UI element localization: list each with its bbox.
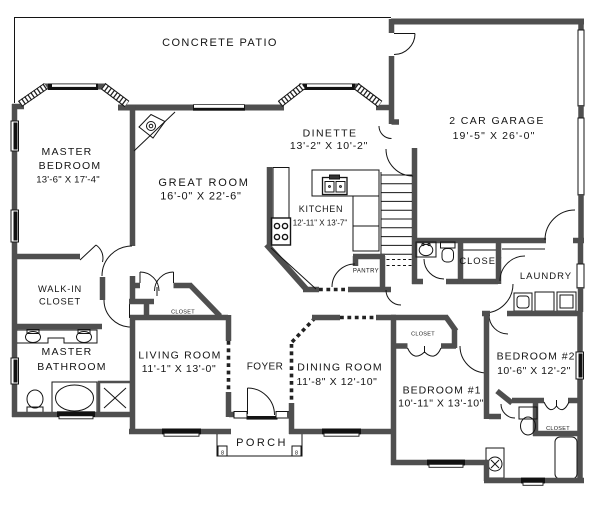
svg-text:PANTRY: PANTRY: [353, 269, 379, 275]
svg-text:12'-11" X 13'-7": 12'-11" X 13'-7": [293, 219, 348, 228]
svg-text:BEDROOM: BEDROOM: [39, 160, 102, 172]
svg-text:LIVING ROOM: LIVING ROOM: [138, 350, 221, 362]
svg-text:BATHROOM: BATHROOM: [37, 361, 107, 373]
svg-text:BEDROOM #1: BEDROOM #1: [403, 385, 482, 397]
svg-text:CLOSET: CLOSET: [171, 310, 195, 316]
svg-text:GREAT ROOM: GREAT ROOM: [158, 177, 249, 189]
svg-text:11'-1" X 13'-0": 11'-1" X 13'-0": [142, 363, 217, 375]
svg-text:13'-6" X 17'-4": 13'-6" X 17'-4": [36, 175, 100, 186]
svg-text:WALK-IN: WALK-IN: [38, 284, 82, 294]
svg-text:CLOSET: CLOSET: [39, 297, 81, 307]
svg-text:PORCH: PORCH: [236, 437, 288, 449]
svg-text:LAUNDRY: LAUNDRY: [520, 271, 572, 282]
svg-text:BEDROOM #2: BEDROOM #2: [497, 351, 576, 363]
svg-text:DINING ROOM: DINING ROOM: [297, 362, 383, 374]
svg-text:CLOSET: CLOSET: [546, 426, 570, 432]
svg-text:FOYER: FOYER: [247, 362, 283, 373]
svg-text:8: 8: [221, 451, 224, 457]
svg-text:10'-6" X 12'-2": 10'-6" X 12'-2": [497, 365, 571, 377]
svg-text:MASTER: MASTER: [42, 346, 93, 358]
svg-text:2 CAR GARAGE: 2 CAR GARAGE: [449, 115, 545, 127]
svg-text:8: 8: [295, 451, 298, 457]
svg-text:DINETTE: DINETTE: [303, 128, 358, 140]
svg-text:10'-11" X 13'-10": 10'-11" X 13'-10": [398, 398, 484, 410]
svg-text:CONCRETE PATIO: CONCRETE PATIO: [162, 37, 278, 49]
svg-text:11'-8" X 12'-10": 11'-8" X 12'-10": [297, 376, 378, 388]
svg-text:13'-2" X 10'-2": 13'-2" X 10'-2": [290, 140, 368, 152]
svg-text:MASTER: MASTER: [42, 146, 93, 158]
svg-text:KITCHEN: KITCHEN: [299, 204, 343, 214]
svg-text:16'-0" X 22'-6": 16'-0" X 22'-6": [160, 191, 242, 203]
svg-text:19'-5" X 26'-0": 19'-5" X 26'-0": [453, 130, 536, 142]
svg-text:CLOSET: CLOSET: [411, 332, 435, 338]
